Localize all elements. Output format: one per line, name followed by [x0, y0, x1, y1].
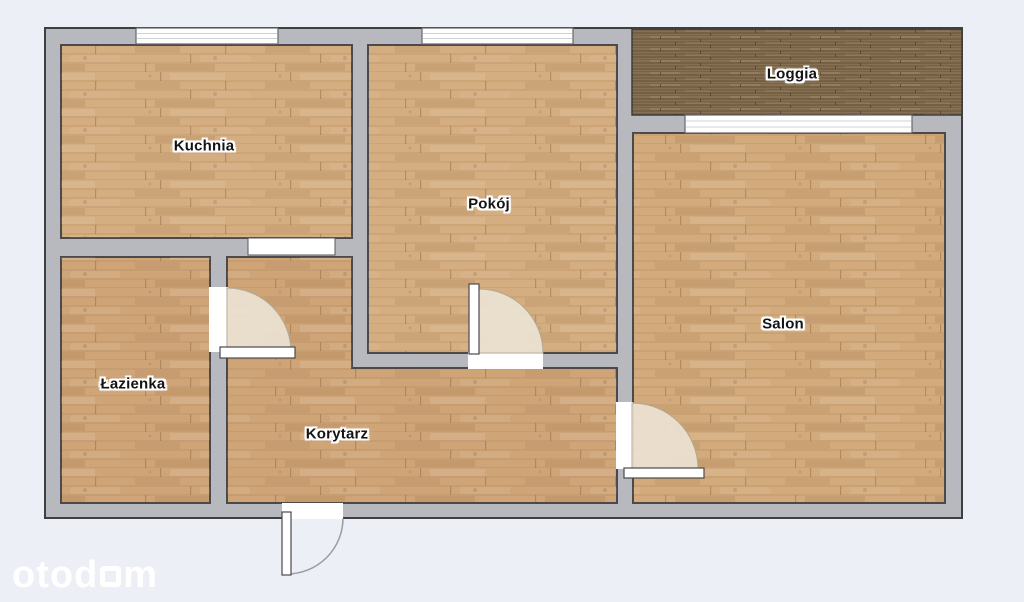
entrance-door-swing-arc — [287, 519, 343, 575]
room-label-loggia: Loggia — [767, 66, 817, 83]
salon-loggia-window — [685, 115, 912, 133]
room-label-lazienka: Łazienka — [101, 376, 166, 393]
pokoj-door-leaf — [469, 284, 479, 354]
floorplan-drawing — [0, 0, 1024, 602]
pokoj-window — [422, 28, 573, 44]
lazienka-door-leaf — [220, 347, 295, 358]
room-label-kuchnia: Kuchnia — [174, 138, 235, 155]
kuchnia-doorway-opening — [248, 238, 335, 255]
kuchnia-window — [136, 28, 278, 44]
room-label-pokoj: Pokój — [468, 196, 510, 213]
entrance-door-leaf — [282, 512, 291, 575]
floorplan-image: Kuchnia Pokój Loggia Salon Łazienka Kory… — [0, 0, 1024, 602]
room-label-salon: Salon — [762, 316, 804, 333]
otodom-watermark: otodm — [12, 556, 158, 594]
otodom-square-o-icon — [100, 566, 121, 587]
otodom-watermark-pre: otod — [12, 554, 98, 596]
salon-door-leaf — [624, 468, 704, 478]
room-label-korytarz: Korytarz — [306, 426, 368, 443]
lazienka-door-opening — [209, 287, 228, 352]
salon-door-opening — [616, 402, 633, 469]
otodom-watermark-post: m — [123, 554, 158, 596]
entrance-door — [282, 503, 343, 575]
